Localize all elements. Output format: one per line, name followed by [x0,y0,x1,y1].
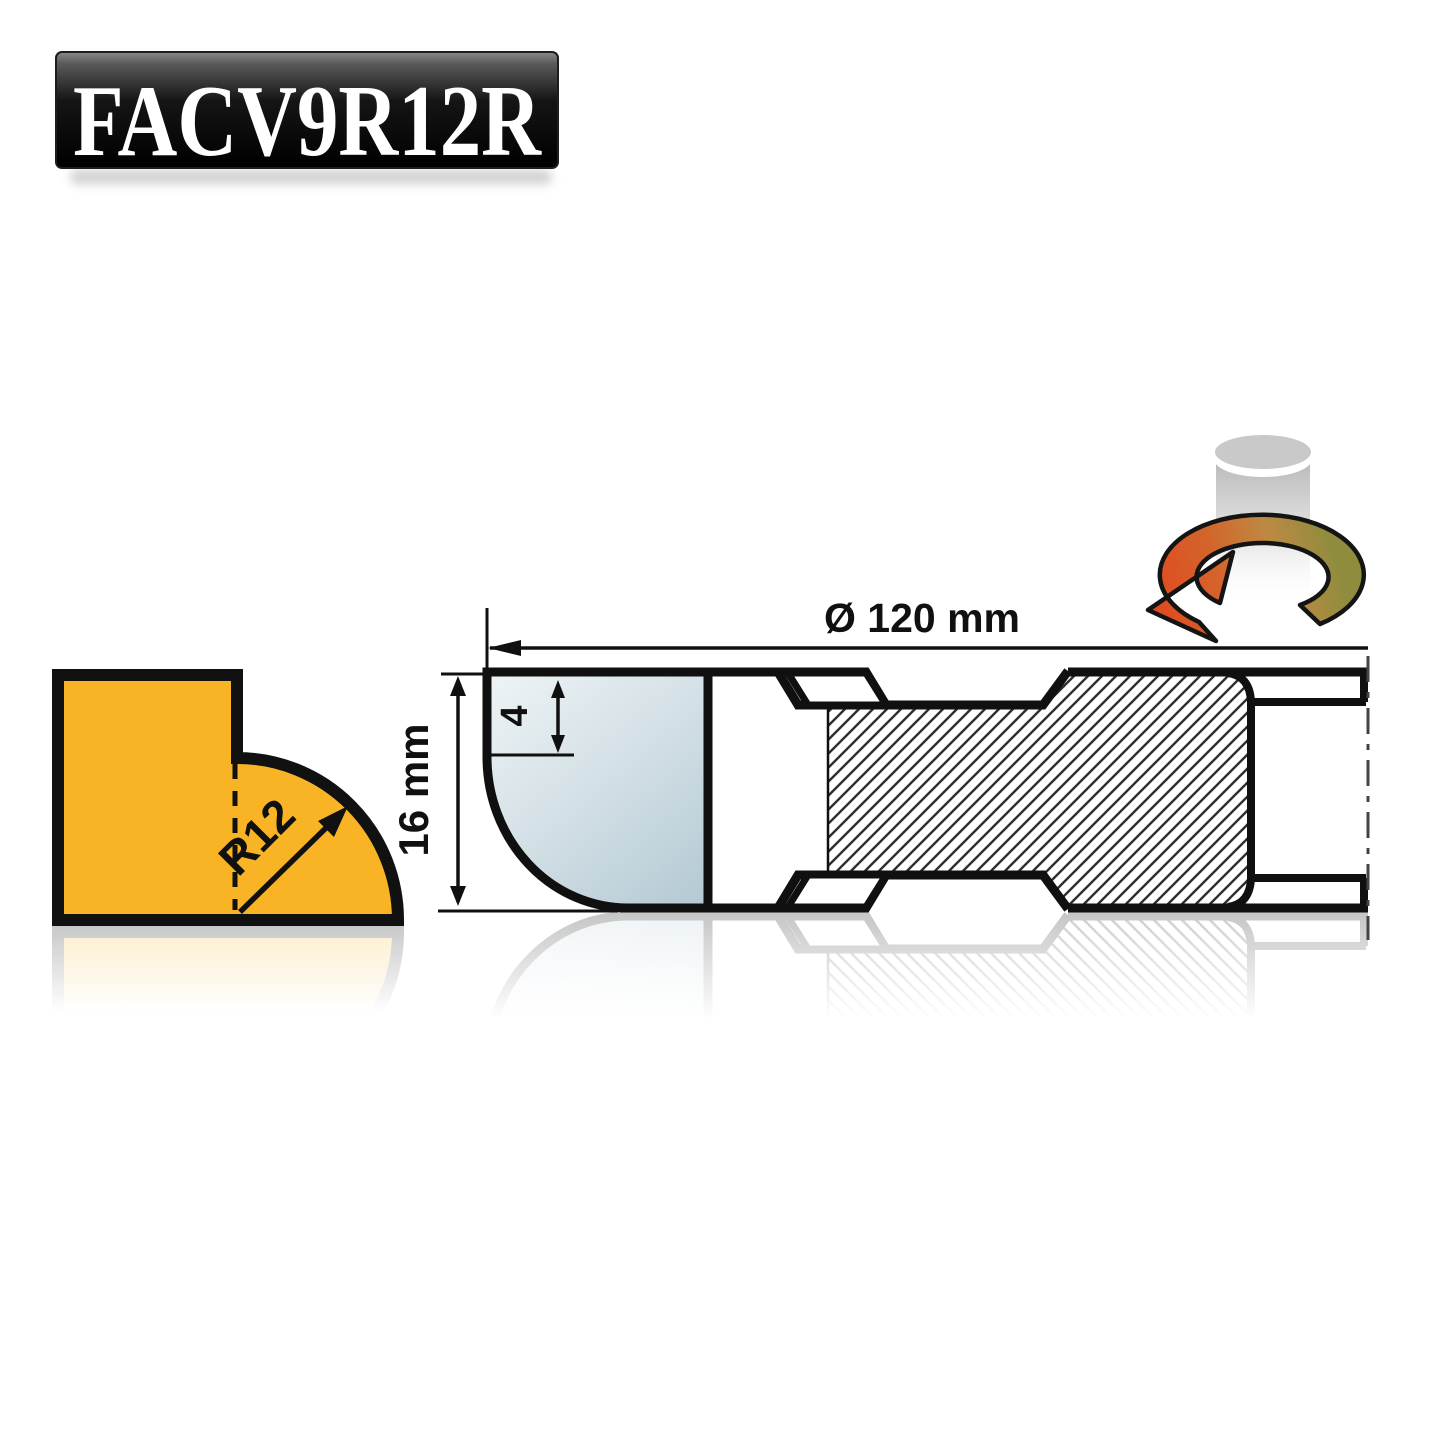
profile-reflection [58,932,398,1177]
step-label: 4 [494,705,536,726]
product-code: FACV9R12R [73,65,542,178]
product-code-plate: FACV9R12R [56,52,558,184]
cutter-head-diagram: FACV9R12R R12 [0,0,1445,1445]
product-diagram-page: FACV9R12R R12 [0,0,1445,1445]
spindle-rotation-icon [1148,435,1364,641]
cylinder-top [1215,435,1311,469]
height-arrow-down [450,886,466,906]
diameter-arrowhead [488,640,521,656]
profile-shape [58,675,398,920]
height-arrow-up [450,676,466,696]
clamp-wedge-bottom [788,875,886,907]
cutter-body-section [483,671,1368,909]
diameter-label: Ø 120 mm [824,595,1020,641]
bore-walls [1251,672,1366,908]
section-reflection [483,915,1368,1153]
clamp-wedge-top [788,673,886,705]
profile-sample [58,675,398,920]
height-label: 16 mm [390,723,437,856]
